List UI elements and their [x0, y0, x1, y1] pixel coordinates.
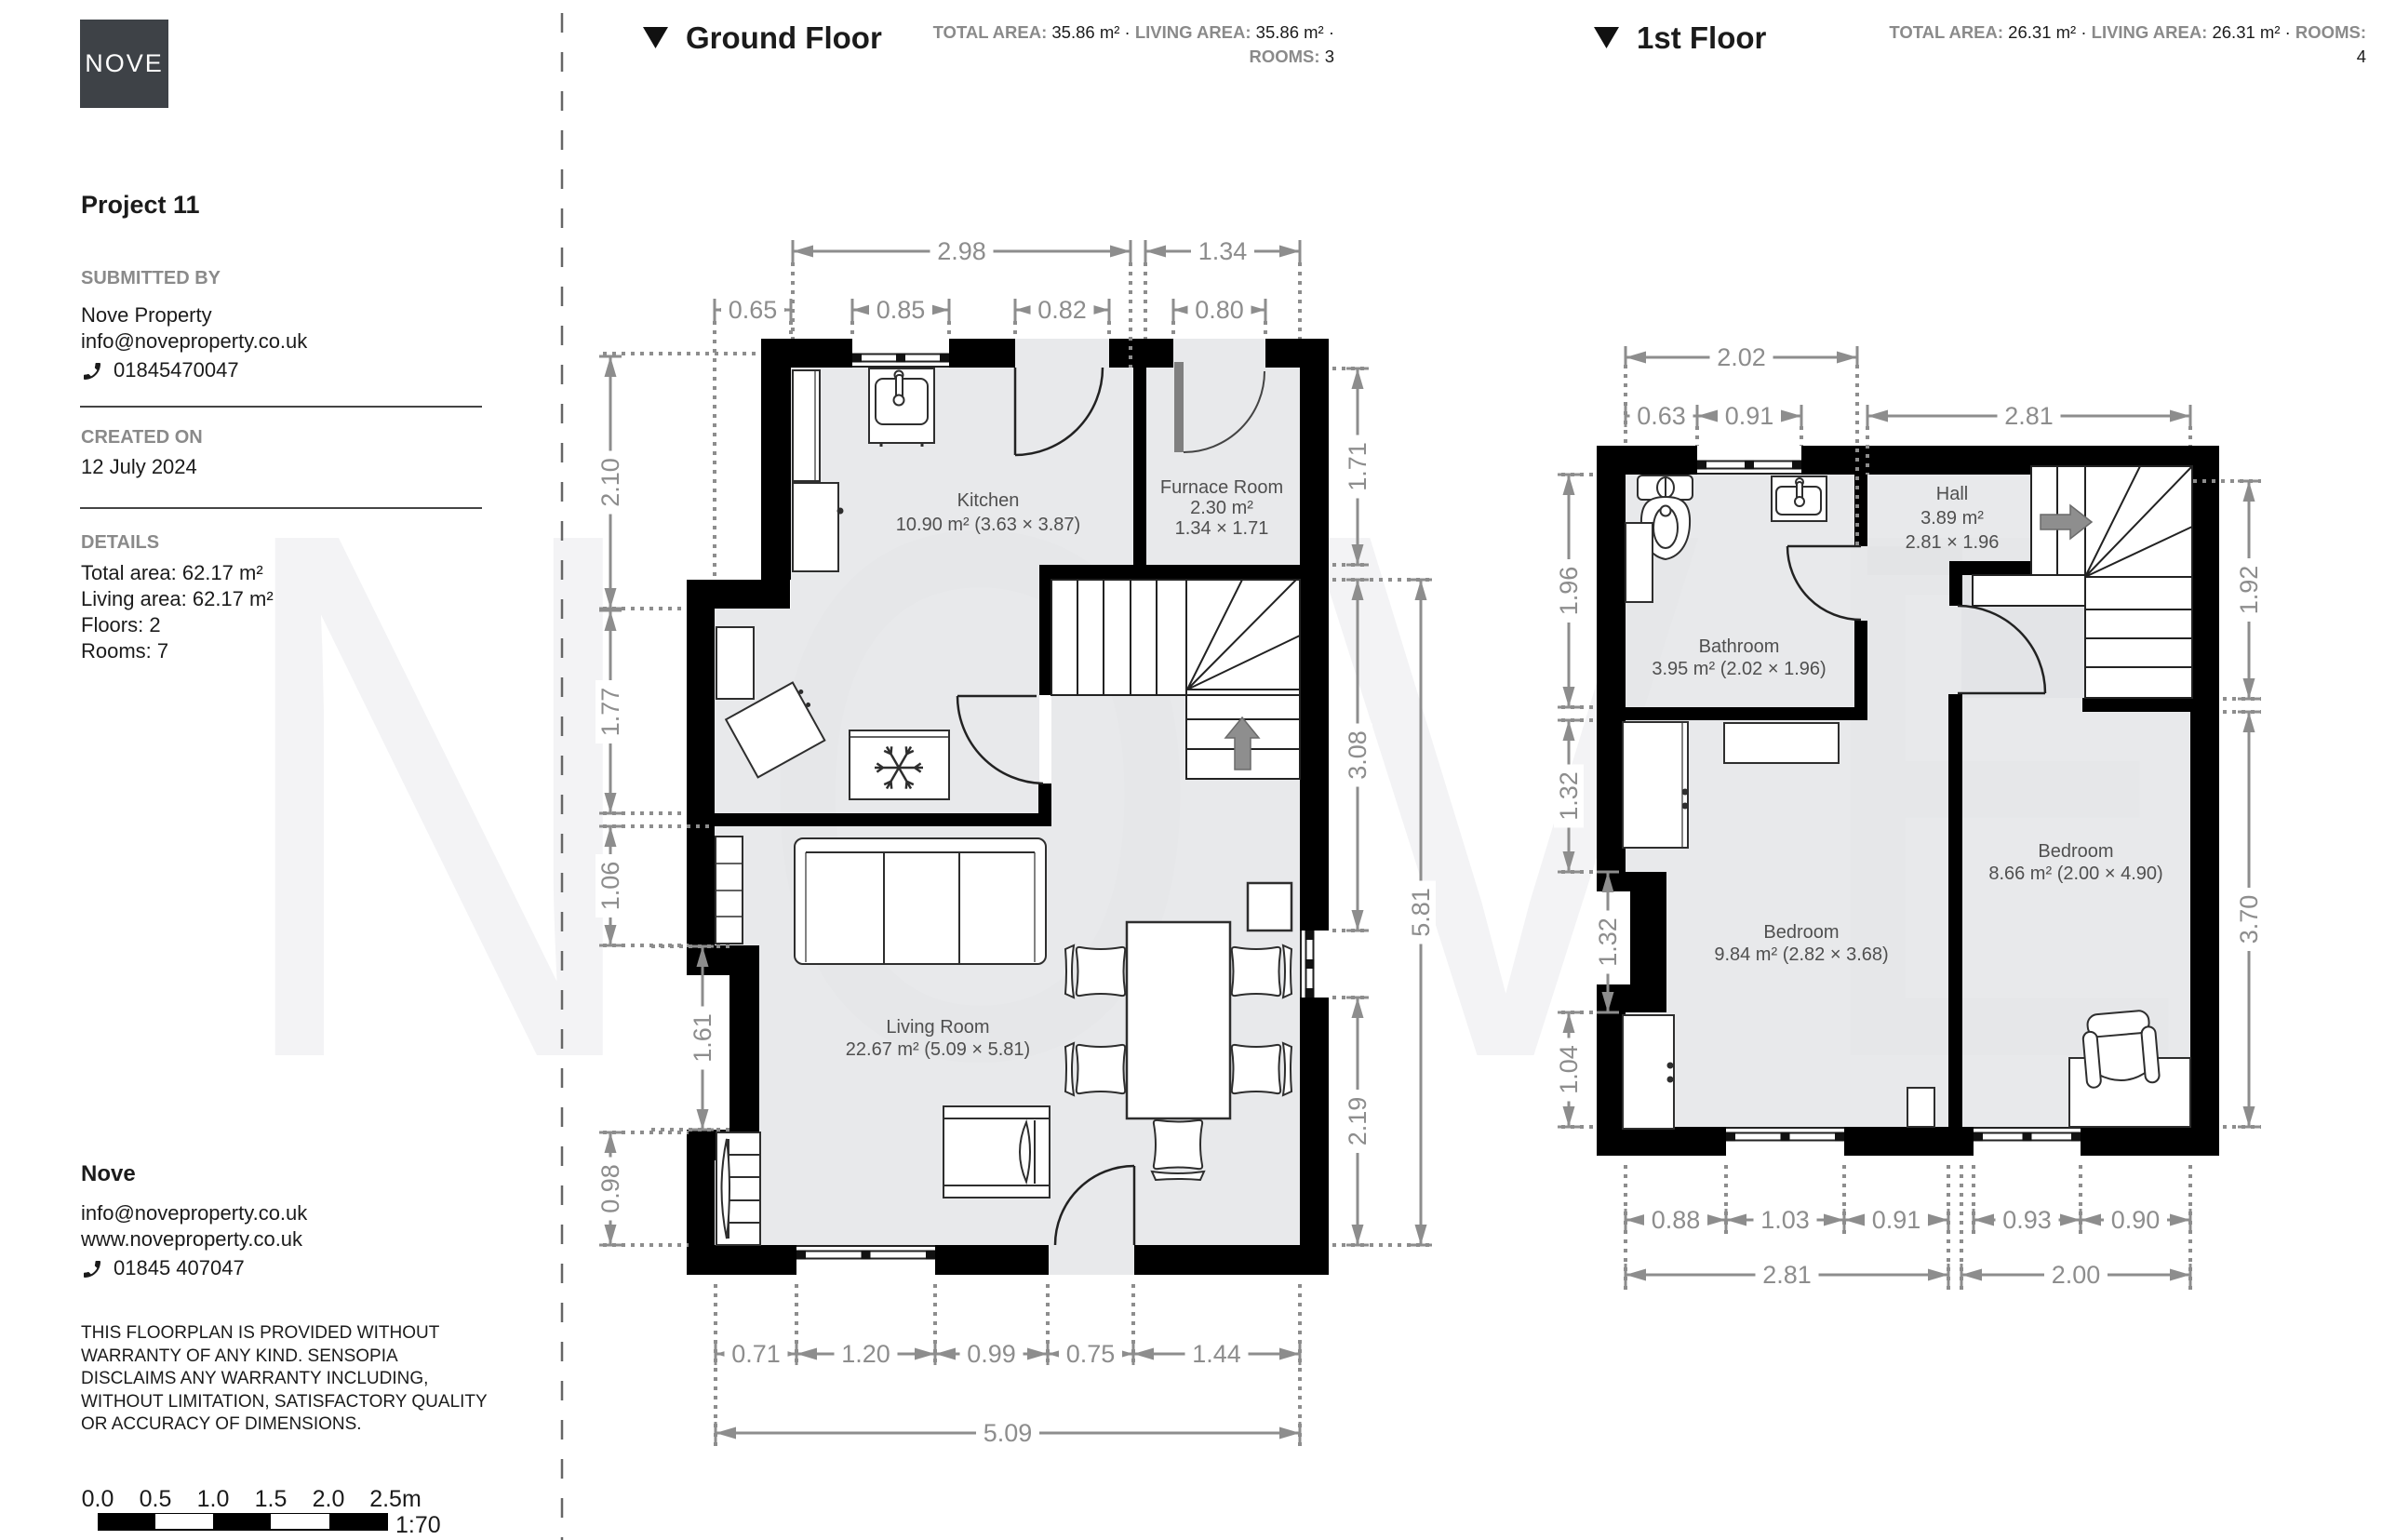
svg-text:2.02: 2.02 — [1717, 343, 1766, 371]
svg-text:0.99: 0.99 — [967, 1340, 1016, 1368]
svg-text:3.70: 3.70 — [2235, 895, 2263, 944]
svg-text:1.20: 1.20 — [841, 1340, 890, 1368]
svg-text:0.75: 0.75 — [1066, 1340, 1116, 1368]
svg-text:9.84 m² (2.82 × 3.68): 9.84 m² (2.82 × 3.68) — [1714, 944, 1888, 965]
svg-text:2.81: 2.81 — [1762, 1261, 1812, 1289]
svg-text:0.82: 0.82 — [1037, 296, 1087, 324]
svg-text:1.04: 1.04 — [1555, 1045, 1583, 1094]
svg-text:2.00: 2.00 — [2052, 1261, 2101, 1289]
svg-text:1.92: 1.92 — [2235, 566, 2263, 615]
svg-text:0.93: 0.93 — [2002, 1206, 2052, 1234]
svg-text:2.81: 2.81 — [2004, 402, 2054, 430]
svg-text:1.06: 1.06 — [596, 862, 624, 911]
svg-text:3.89 m²: 3.89 m² — [1920, 508, 1984, 529]
svg-text:2.19: 2.19 — [1344, 1097, 1372, 1146]
svg-text:Bedroom: Bedroom — [2038, 841, 2113, 862]
svg-text:5.81: 5.81 — [1407, 888, 1435, 937]
svg-text:1.34: 1.34 — [1198, 237, 1248, 265]
svg-text:0.63: 0.63 — [1637, 402, 1686, 430]
svg-text:0.65: 0.65 — [729, 296, 778, 324]
svg-text:Furnace Room: Furnace Room — [1160, 477, 1283, 498]
svg-text:0.91: 0.91 — [1872, 1206, 1921, 1234]
svg-text:1.03: 1.03 — [1760, 1206, 1810, 1234]
svg-text:0.88: 0.88 — [1652, 1206, 1701, 1234]
svg-text:8.66 m² (2.00 × 4.90): 8.66 m² (2.00 × 4.90) — [1988, 864, 2162, 884]
svg-text:0.80: 0.80 — [1195, 296, 1244, 324]
svg-text:Bedroom: Bedroom — [1763, 922, 1839, 943]
svg-text:1.61: 1.61 — [689, 1013, 716, 1063]
svg-text:0.91: 0.91 — [1725, 402, 1774, 430]
svg-text:3.95 m² (2.02 × 1.96): 3.95 m² (2.02 × 1.96) — [1652, 659, 1826, 679]
svg-text:0.90: 0.90 — [2111, 1206, 2161, 1234]
svg-text:Hall: Hall — [1936, 484, 1968, 504]
svg-text:0.85: 0.85 — [877, 296, 926, 324]
svg-text:0.98: 0.98 — [596, 1164, 624, 1213]
svg-text:2.81 × 1.96: 2.81 × 1.96 — [1906, 532, 2000, 553]
svg-text:1.77: 1.77 — [596, 688, 624, 737]
svg-text:10.90 m² (3.63 × 3.87): 10.90 m² (3.63 × 3.87) — [896, 515, 1080, 535]
svg-text:Kitchen: Kitchen — [957, 490, 1020, 511]
svg-text:1.32: 1.32 — [1555, 771, 1583, 821]
svg-text:Bathroom: Bathroom — [1699, 636, 1780, 657]
svg-text:3.08: 3.08 — [1344, 730, 1372, 780]
svg-text:2.98: 2.98 — [937, 237, 986, 265]
svg-text:1.34 × 1.71: 1.34 × 1.71 — [1175, 518, 1269, 539]
svg-text:22.67 m² (5.09 × 5.81): 22.67 m² (5.09 × 5.81) — [846, 1039, 1030, 1060]
svg-text:2.30 m²: 2.30 m² — [1190, 498, 1253, 518]
svg-text:5.09: 5.09 — [984, 1419, 1033, 1447]
svg-text:Living Room: Living Room — [886, 1017, 989, 1038]
svg-text:1.44: 1.44 — [1192, 1340, 1241, 1368]
svg-text:1.96: 1.96 — [1555, 567, 1583, 616]
svg-text:2.10: 2.10 — [596, 458, 624, 507]
svg-text:0.71: 0.71 — [731, 1340, 781, 1368]
svg-text:1.32: 1.32 — [1594, 917, 1622, 967]
svg-text:1.71: 1.71 — [1344, 442, 1372, 491]
